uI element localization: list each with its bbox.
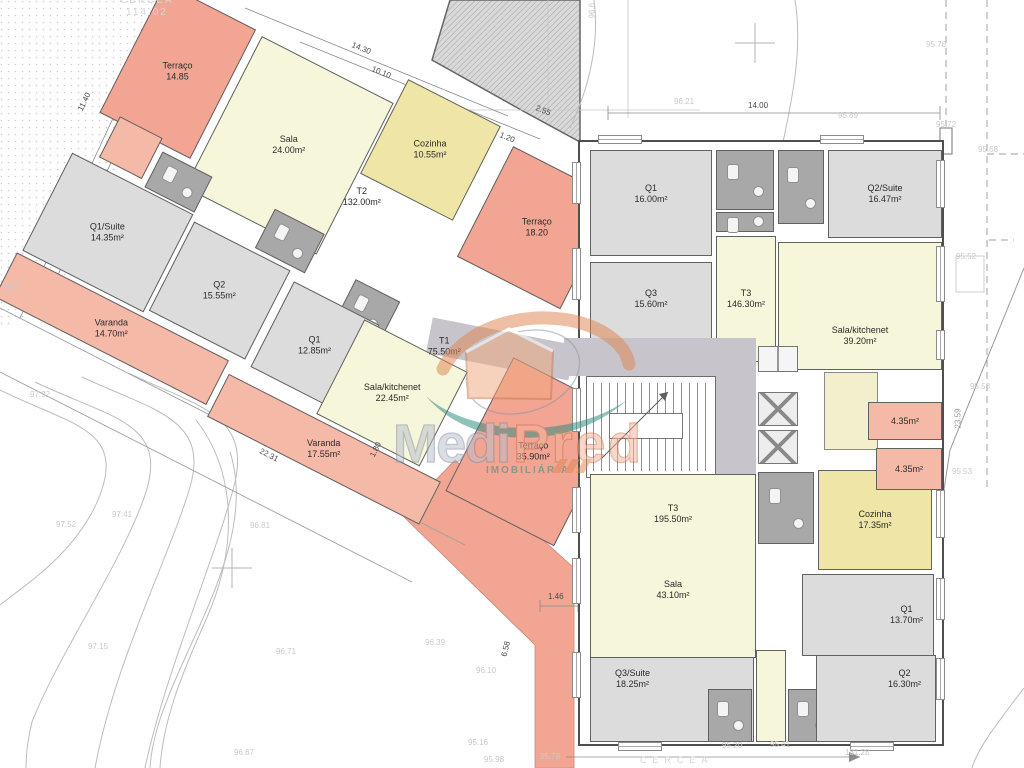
elevation-label: 95.58 (970, 382, 990, 391)
elevator-shaft (758, 392, 798, 426)
elevation-label: 96.10 (476, 666, 496, 675)
room-label: Q112.85m² (298, 335, 331, 357)
room-label: 4.35m² (891, 416, 919, 427)
bathroom (716, 212, 774, 232)
elevation-label: 102 (2, 282, 19, 293)
elevation-label: 96.71 (276, 647, 296, 656)
bathroom (708, 689, 752, 742)
fence-label-bottom: CERCEA (640, 755, 714, 765)
room-label: Sala24.00m² (273, 134, 306, 156)
dimension-label: 23.59 (954, 408, 963, 428)
window-marker (936, 160, 945, 208)
window-marker (936, 490, 945, 538)
room-label: Q216.30m² (888, 668, 921, 690)
window-marker (572, 652, 581, 698)
dimension-label: 14.00 (748, 101, 768, 110)
window-marker (572, 248, 581, 300)
window-marker (572, 558, 581, 604)
survey-box (956, 256, 984, 292)
room-q1-bottom: Q113.70m² (802, 574, 934, 656)
window-marker (936, 330, 945, 360)
room-label: 4.35m² (895, 464, 923, 475)
room-label: T2132.00m² (343, 186, 381, 208)
room-q2-bottom: Q216.30m² (816, 655, 936, 742)
elevation-label: 96.81 (250, 521, 270, 530)
room-q2-suite-top: Q2/Suite16.47m² (828, 150, 942, 238)
room-label: Terraço14.85 (163, 60, 193, 82)
elevation-label: 97.52 (56, 520, 76, 529)
elevation-label: 95.98 (484, 755, 504, 764)
elevation-label: 96.39 (425, 638, 445, 647)
room-label: Q3/Suite18.25m² (615, 668, 650, 690)
elevation-label: 95.20 (722, 741, 742, 750)
corridor-horizontal (564, 338, 716, 376)
balcony-2: 4.35m² (876, 448, 942, 490)
bathroom (778, 150, 824, 224)
room-sala-kitchenet-top: Sala/kitchenet39.20m² (778, 242, 942, 370)
balcony-1: 4.35m² (868, 402, 942, 440)
room-q1-top: Q116.00m² (590, 150, 712, 256)
elevation-label: 95.52 (956, 252, 976, 261)
hall-bottom (756, 650, 786, 742)
dimension-label: 181.28 (845, 748, 869, 757)
elevation-label: 97.41 (112, 510, 132, 519)
stair-landing (609, 413, 683, 439)
room-label: Varanda17.55m² (307, 438, 340, 460)
room-label: Q215.55m² (203, 280, 236, 302)
room-label: Sala/kitchenet39.20m² (832, 325, 889, 347)
room-label: Q113.70m² (890, 604, 923, 626)
stairwell (586, 376, 716, 478)
boundary-solid (934, 268, 1024, 556)
fence-value-top: 114.02 (126, 7, 168, 18)
room-label: Varanda14.70m² (95, 318, 128, 340)
unit-label-t3-bottom: T3195.50m² (591, 503, 755, 525)
window-marker (936, 658, 945, 700)
elevation-label: 97.92 (30, 390, 50, 399)
corridor-vertical (716, 338, 756, 478)
room-label: Sala43.10m² (591, 579, 755, 601)
window-marker (572, 487, 581, 533)
window-marker (820, 135, 864, 144)
elevation-label: 95.89 (838, 111, 858, 120)
window-marker (936, 246, 945, 302)
dimension-label: 1.46 (548, 592, 564, 601)
room-label: Q2/Suite16.47m² (867, 183, 902, 205)
right-building: Q116.00m² Q2/Suite16.47m² T3146.30m² Q31… (578, 140, 944, 746)
room-label: Terraço18.20 (522, 217, 552, 239)
elevation-label: 97.15 (88, 642, 108, 651)
window-marker (618, 742, 662, 751)
elevation-label: 96.67 (234, 748, 254, 757)
room-t3-bottom: T3195.50m² Sala43.10m² (590, 474, 756, 658)
bathroom (716, 150, 774, 210)
window-marker (598, 135, 642, 144)
room-label: Cozinha17.35m² (858, 509, 891, 531)
bathroom (758, 472, 814, 544)
window-marker (572, 162, 581, 204)
room-label: Q116.00m² (634, 183, 667, 205)
room-label: Sala/kitchenet22.45m² (364, 382, 421, 404)
room-label: Terraço35.90m² (517, 441, 550, 463)
elevator-car (758, 346, 798, 372)
elevation-label: 95.72 (936, 120, 956, 129)
elevation-label: 95.16 (468, 738, 488, 747)
room-label: Q1/Suite14.35m² (90, 221, 125, 243)
elevation-label: 95.78 (540, 752, 560, 761)
window-marker (936, 578, 945, 620)
room-label: Q315.60m² (634, 288, 667, 310)
elevation-label: 96.6 (588, 3, 597, 19)
room-label: T175.50m² (428, 336, 461, 358)
unit-label-t3-top: T3146.30m² (727, 288, 765, 310)
window-marker (572, 388, 581, 432)
room-label: Cozinha10.55m² (414, 139, 447, 161)
elevation-label: 96.21 (674, 97, 694, 106)
elevation-label: 95.41 (770, 740, 790, 749)
elevation-label: 95.53 (952, 467, 972, 476)
elevation-label: 95.76 (926, 40, 946, 49)
elevator-shaft (758, 430, 798, 464)
floor-plan-canvas: Terraço14.85 Sala24.00m² Cozinha10.55m² … (0, 0, 1024, 768)
elevation-label: 95.68 (978, 145, 998, 154)
fence-label-top: CERCEA (120, 0, 174, 6)
